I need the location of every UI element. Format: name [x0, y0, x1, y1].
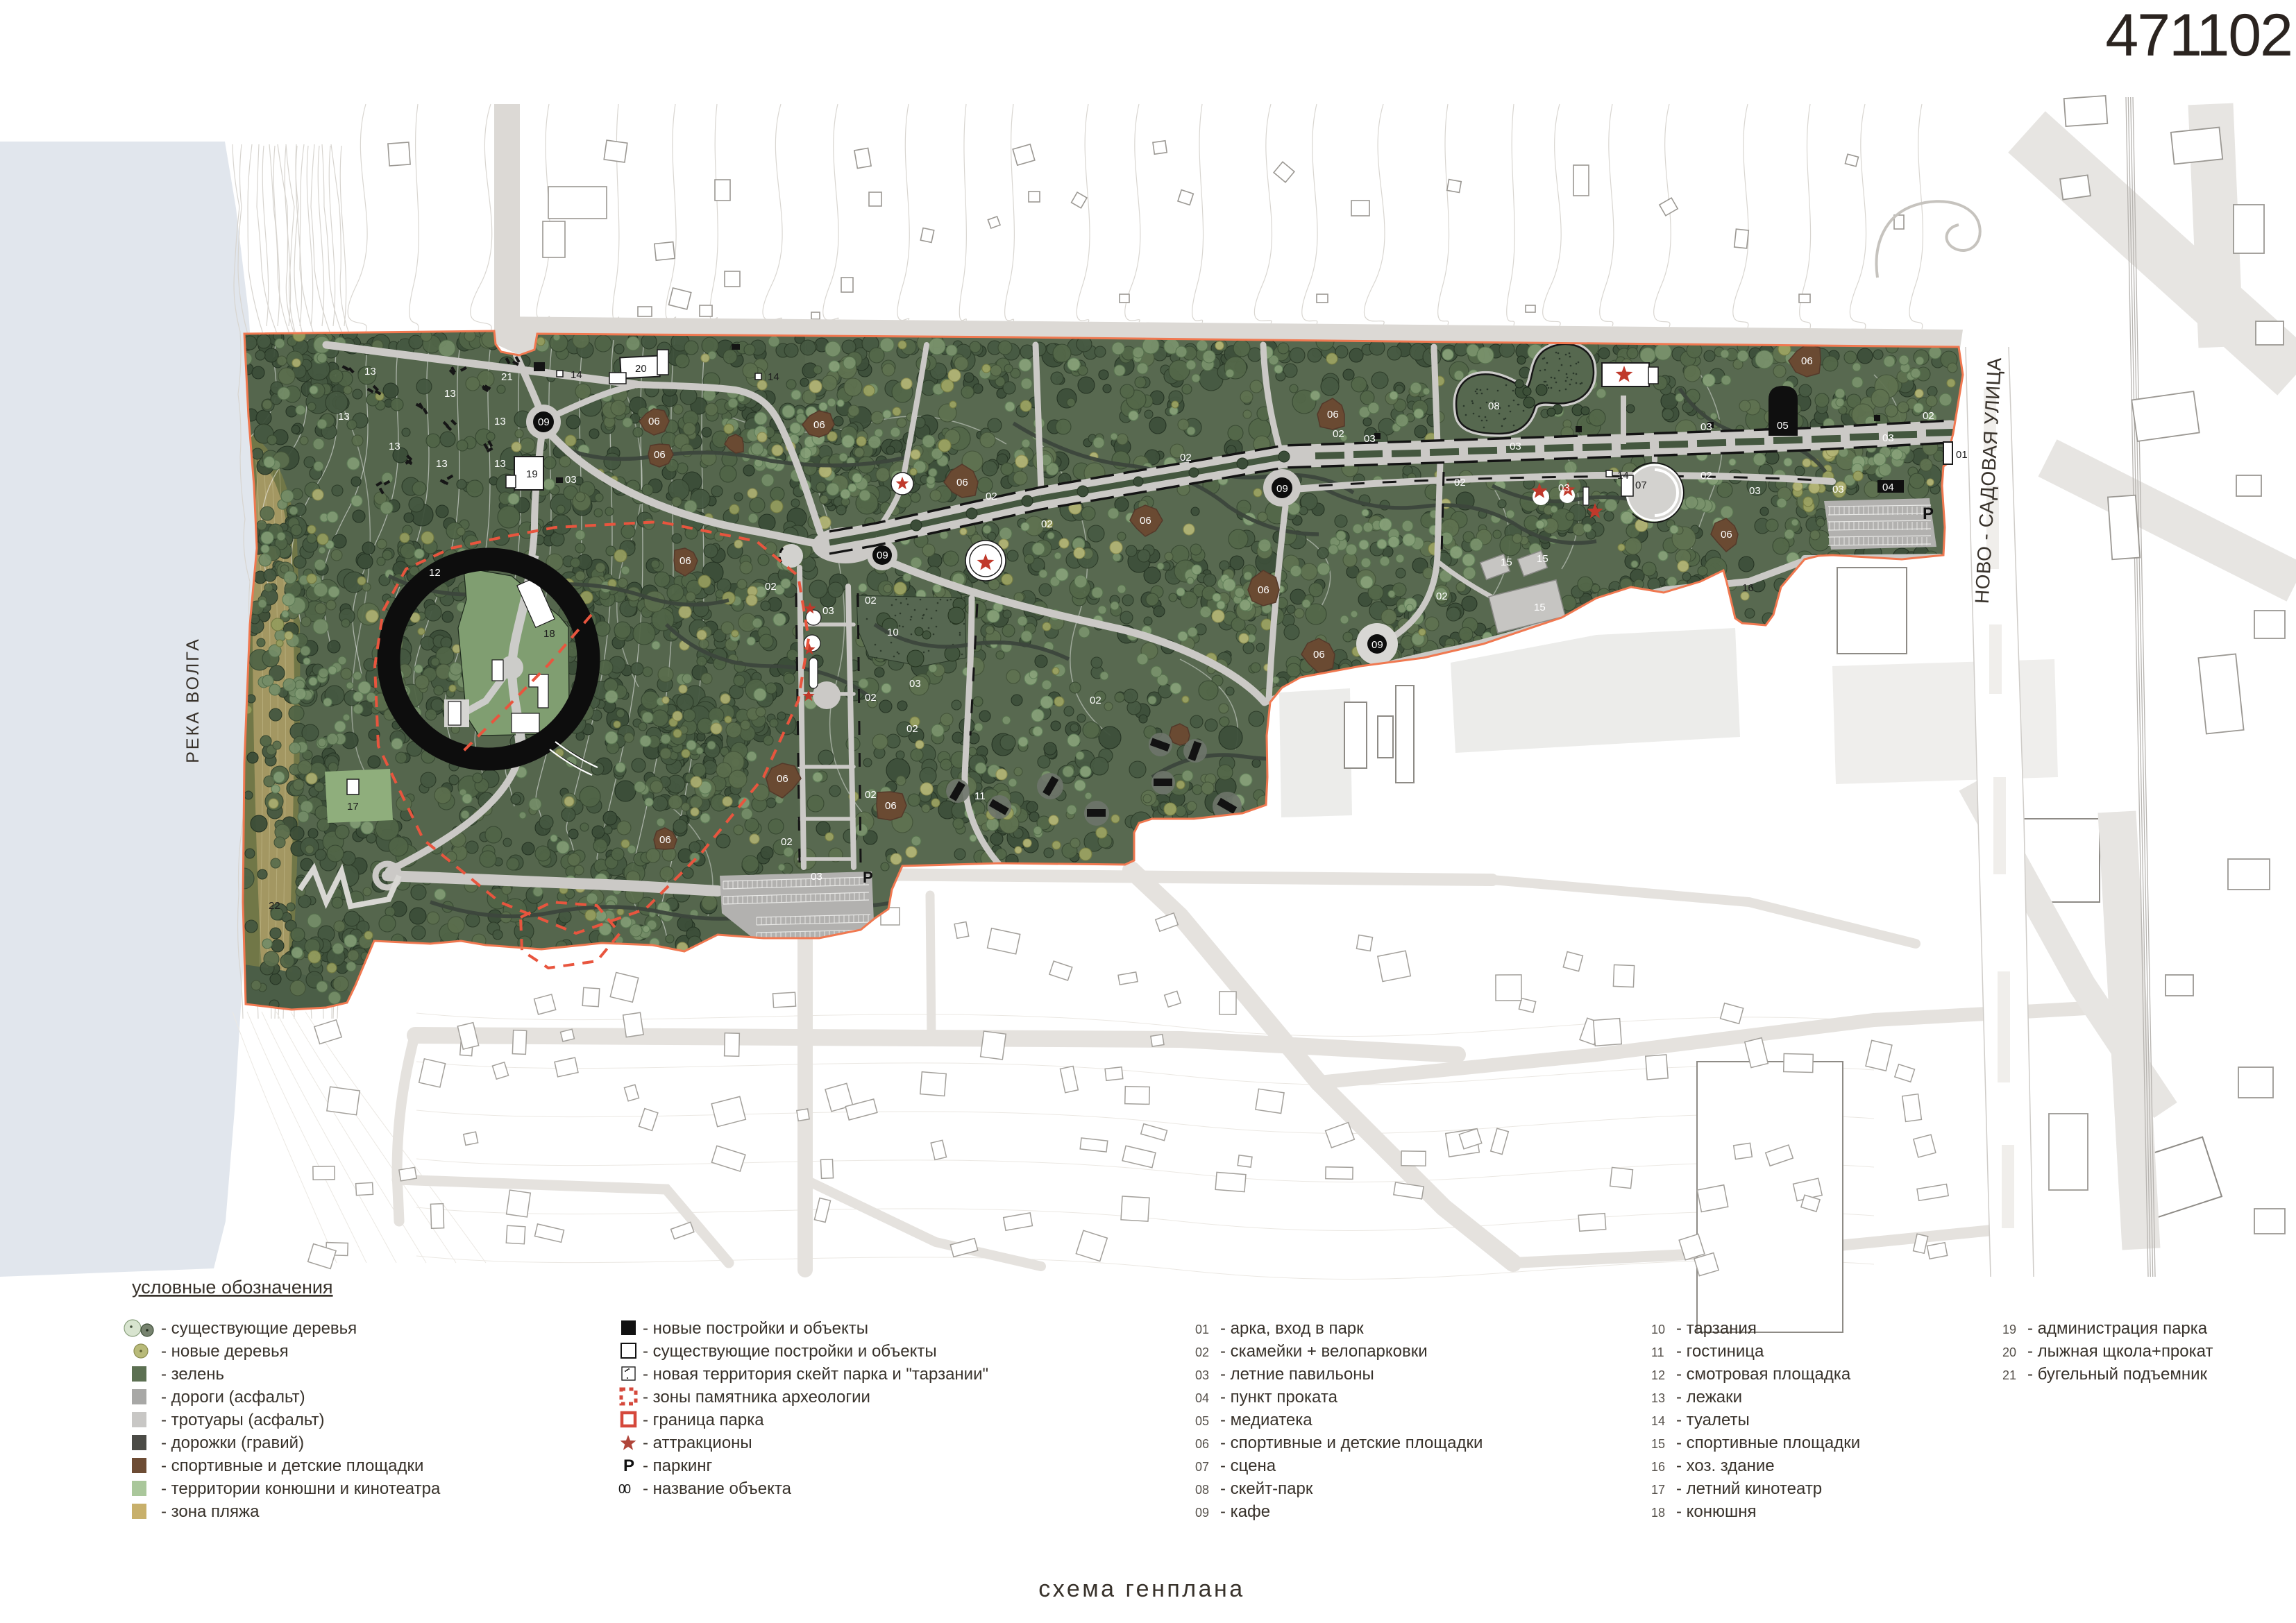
svg-text:- спортивные площадки: - спортивные площадки [1676, 1434, 1860, 1452]
svg-text:- медиатека: - медиатека [1220, 1411, 1312, 1429]
svg-text:03: 03 [1749, 485, 1761, 497]
svg-text:02: 02 [1923, 410, 1934, 422]
svg-text:- скамейки + велопарковки: - скамейки + велопарковки [1220, 1342, 1428, 1361]
svg-text:22: 22 [269, 900, 280, 912]
svg-text:07: 07 [1195, 1460, 1209, 1474]
svg-text:- лежаки: - лежаки [1676, 1388, 1742, 1407]
svg-text:- новые постройки и объекты: - новые постройки и объекты [643, 1319, 868, 1338]
svg-text:- туалеты: - туалеты [1676, 1411, 1750, 1429]
svg-text:- тарзания: - тарзания [1676, 1319, 1757, 1338]
svg-text:P: P [623, 1456, 634, 1475]
svg-text:471102: 471102 [2105, 2, 2292, 69]
svg-text:13: 13 [444, 388, 456, 400]
svg-text:схема генплана: схема генплана [1038, 1576, 1244, 1602]
svg-text:13: 13 [1651, 1391, 1665, 1405]
svg-text:03: 03 [909, 678, 921, 690]
svg-text:19: 19 [2002, 1323, 2016, 1336]
svg-text:08: 08 [1195, 1483, 1209, 1497]
svg-text:20: 20 [635, 363, 647, 375]
svg-text:02: 02 [1090, 695, 1101, 706]
svg-text:03: 03 [811, 871, 822, 883]
svg-text:02: 02 [986, 491, 997, 502]
svg-text:03: 03 [1832, 484, 1844, 495]
svg-text:10: 10 [887, 627, 899, 638]
svg-text:- летние павильоны: - летние павильоны [1220, 1365, 1374, 1384]
svg-text:- гостиница: - гостиница [1676, 1342, 1764, 1361]
svg-text:- зона пляжа: - зона пляжа [161, 1502, 260, 1521]
svg-text:- дороги (асфальт): - дороги (асфальт) [161, 1388, 305, 1407]
svg-text:- конюшня: - конюшня [1676, 1502, 1757, 1521]
svg-text:11: 11 [974, 790, 986, 802]
svg-text:- пункт проката: - пункт проката [1220, 1388, 1338, 1407]
svg-text:06: 06 [1721, 529, 1732, 541]
svg-text:03: 03 [1700, 421, 1712, 433]
svg-text:01: 01 [1956, 449, 1968, 461]
svg-text:21: 21 [2002, 1368, 2016, 1382]
svg-text:10: 10 [1651, 1323, 1665, 1336]
svg-text:12: 12 [429, 567, 441, 579]
svg-text:- название объекта: - название объекта [643, 1479, 792, 1498]
svg-text:06: 06 [813, 419, 825, 431]
svg-text:14: 14 [1617, 470, 1629, 482]
svg-text:18: 18 [543, 628, 555, 640]
svg-text:00: 00 [618, 1482, 631, 1496]
svg-text:02: 02 [1195, 1345, 1209, 1359]
svg-text:- скейт-парк: - скейт-парк [1220, 1479, 1313, 1498]
svg-text:- зелень: - зелень [161, 1365, 224, 1384]
svg-text:03: 03 [822, 605, 834, 617]
svg-text:- сцена: - сцена [1220, 1456, 1276, 1475]
svg-text:02: 02 [865, 595, 877, 606]
svg-text:15: 15 [1534, 602, 1546, 613]
svg-text:- новые деревья: - новые деревья [161, 1342, 289, 1361]
svg-text:06: 06 [1313, 649, 1325, 661]
svg-text:17: 17 [1651, 1483, 1665, 1497]
svg-text:P: P [863, 869, 873, 886]
svg-text:08: 08 [1488, 400, 1500, 412]
svg-text:- зоны памятника археологии: - зоны памятника археологии [643, 1388, 870, 1407]
svg-text:- арка, вход в парк: - арка, вход в парк [1220, 1319, 1364, 1338]
svg-text:- новая территория скейт парка: - новая территория скейт парка и "тарзан… [643, 1365, 988, 1384]
svg-text:- летний кинотеатр: - летний кинотеатр [1676, 1479, 1822, 1498]
svg-text:14: 14 [1651, 1414, 1665, 1428]
svg-text:06: 06 [1140, 515, 1151, 527]
svg-text:03: 03 [1195, 1368, 1209, 1382]
svg-text:09: 09 [538, 416, 550, 428]
svg-text:02: 02 [781, 836, 793, 848]
svg-text:13: 13 [364, 366, 376, 377]
svg-text:- существующие постройки и объ: - существующие постройки и объекты [643, 1342, 937, 1361]
svg-text:07: 07 [1635, 479, 1647, 491]
svg-text:- лыжная щкола+прокат: - лыжная щкола+прокат [2027, 1342, 2213, 1361]
svg-text:- хоз. здание: - хоз. здание [1676, 1456, 1775, 1475]
svg-text:03: 03 [1882, 432, 1894, 444]
svg-text:02: 02 [1180, 452, 1192, 464]
svg-text:06: 06 [1327, 409, 1339, 420]
svg-text:02: 02 [765, 581, 777, 593]
svg-text:20: 20 [2002, 1345, 2016, 1359]
svg-text:- администрация парка: - администрация парка [2027, 1319, 2208, 1338]
svg-text:06: 06 [885, 800, 897, 812]
svg-text:- спортивные и детские площадк: - спортивные и детские площадки [161, 1456, 423, 1475]
svg-text:04: 04 [1882, 482, 1894, 493]
svg-text:- бугельный подъемник: - бугельный подъемник [2027, 1365, 2208, 1384]
svg-text:- граница парка: - граница парка [643, 1411, 764, 1429]
svg-text:- спортивные и детские площадк: - спортивные и детские площадки [1220, 1434, 1483, 1452]
svg-text:21: 21 [501, 371, 513, 383]
svg-text:- территории конюшни и кинотеа: - территории конюшни и кинотеатра [161, 1479, 441, 1498]
svg-text:03: 03 [1364, 433, 1376, 445]
svg-text:09: 09 [1195, 1506, 1209, 1520]
svg-text:12: 12 [1651, 1368, 1665, 1382]
svg-text:18: 18 [1651, 1506, 1665, 1520]
svg-text:05: 05 [1195, 1414, 1209, 1428]
svg-text:03: 03 [1558, 482, 1570, 494]
svg-text:06: 06 [648, 416, 660, 427]
svg-text:15: 15 [1537, 553, 1548, 565]
svg-text:РЕКА ВОЛГА: РЕКА ВОЛГА [183, 637, 203, 763]
svg-text:02: 02 [1436, 590, 1448, 602]
svg-text:16: 16 [1651, 1460, 1665, 1474]
svg-text:02: 02 [865, 789, 877, 801]
svg-text:09: 09 [1276, 483, 1288, 495]
svg-text:04: 04 [1195, 1391, 1209, 1405]
svg-text:17: 17 [347, 801, 359, 813]
svg-text:06: 06 [777, 773, 788, 785]
svg-text:14: 14 [768, 371, 779, 383]
svg-text:- дорожки (гравий): - дорожки (гравий) [161, 1434, 304, 1452]
svg-text:06: 06 [956, 477, 968, 488]
svg-text:14: 14 [571, 369, 582, 381]
svg-text:02: 02 [906, 723, 918, 735]
svg-text:06: 06 [1195, 1437, 1209, 1451]
svg-text:03: 03 [1510, 441, 1521, 452]
svg-text:05: 05 [1777, 420, 1789, 432]
svg-text:- паркинг: - паркинг [643, 1456, 713, 1475]
svg-text:- кафе: - кафе [1220, 1502, 1270, 1521]
svg-text:06: 06 [659, 834, 671, 846]
svg-text:16: 16 [1742, 582, 1754, 594]
svg-text:13: 13 [389, 441, 400, 452]
svg-text:13: 13 [494, 458, 506, 470]
svg-text:02: 02 [1454, 477, 1466, 488]
svg-text:15: 15 [1501, 556, 1512, 568]
svg-text:01: 01 [1195, 1323, 1209, 1336]
svg-text:06: 06 [679, 555, 691, 567]
svg-text:P: P [1923, 504, 1934, 523]
svg-text:06: 06 [1801, 355, 1813, 367]
svg-text:- существующие деревья: - существующие деревья [161, 1319, 357, 1338]
svg-text:09: 09 [1371, 639, 1383, 651]
svg-text:условные обозначения: условные обозначения [132, 1277, 333, 1298]
svg-text:19: 19 [526, 468, 538, 480]
svg-text:- смотровая площадка: - смотровая площадка [1676, 1365, 1851, 1384]
svg-text:02: 02 [1041, 518, 1053, 530]
svg-text:02: 02 [1333, 428, 1344, 440]
svg-text:13: 13 [494, 416, 506, 427]
svg-text:02: 02 [1700, 470, 1712, 482]
svg-text:13: 13 [436, 458, 448, 470]
svg-text:- аттракционы: - аттракционы [643, 1434, 752, 1452]
svg-text:- тротуары (асфальт): - тротуары (асфальт) [161, 1411, 324, 1429]
svg-text:03: 03 [565, 474, 577, 486]
svg-text:11: 11 [1651, 1345, 1664, 1359]
svg-text:06: 06 [1258, 584, 1269, 596]
svg-text:02: 02 [865, 692, 877, 704]
svg-text:13: 13 [338, 411, 350, 423]
svg-text:06: 06 [654, 449, 666, 461]
svg-text:15: 15 [1651, 1437, 1665, 1451]
svg-text:09: 09 [877, 550, 888, 561]
